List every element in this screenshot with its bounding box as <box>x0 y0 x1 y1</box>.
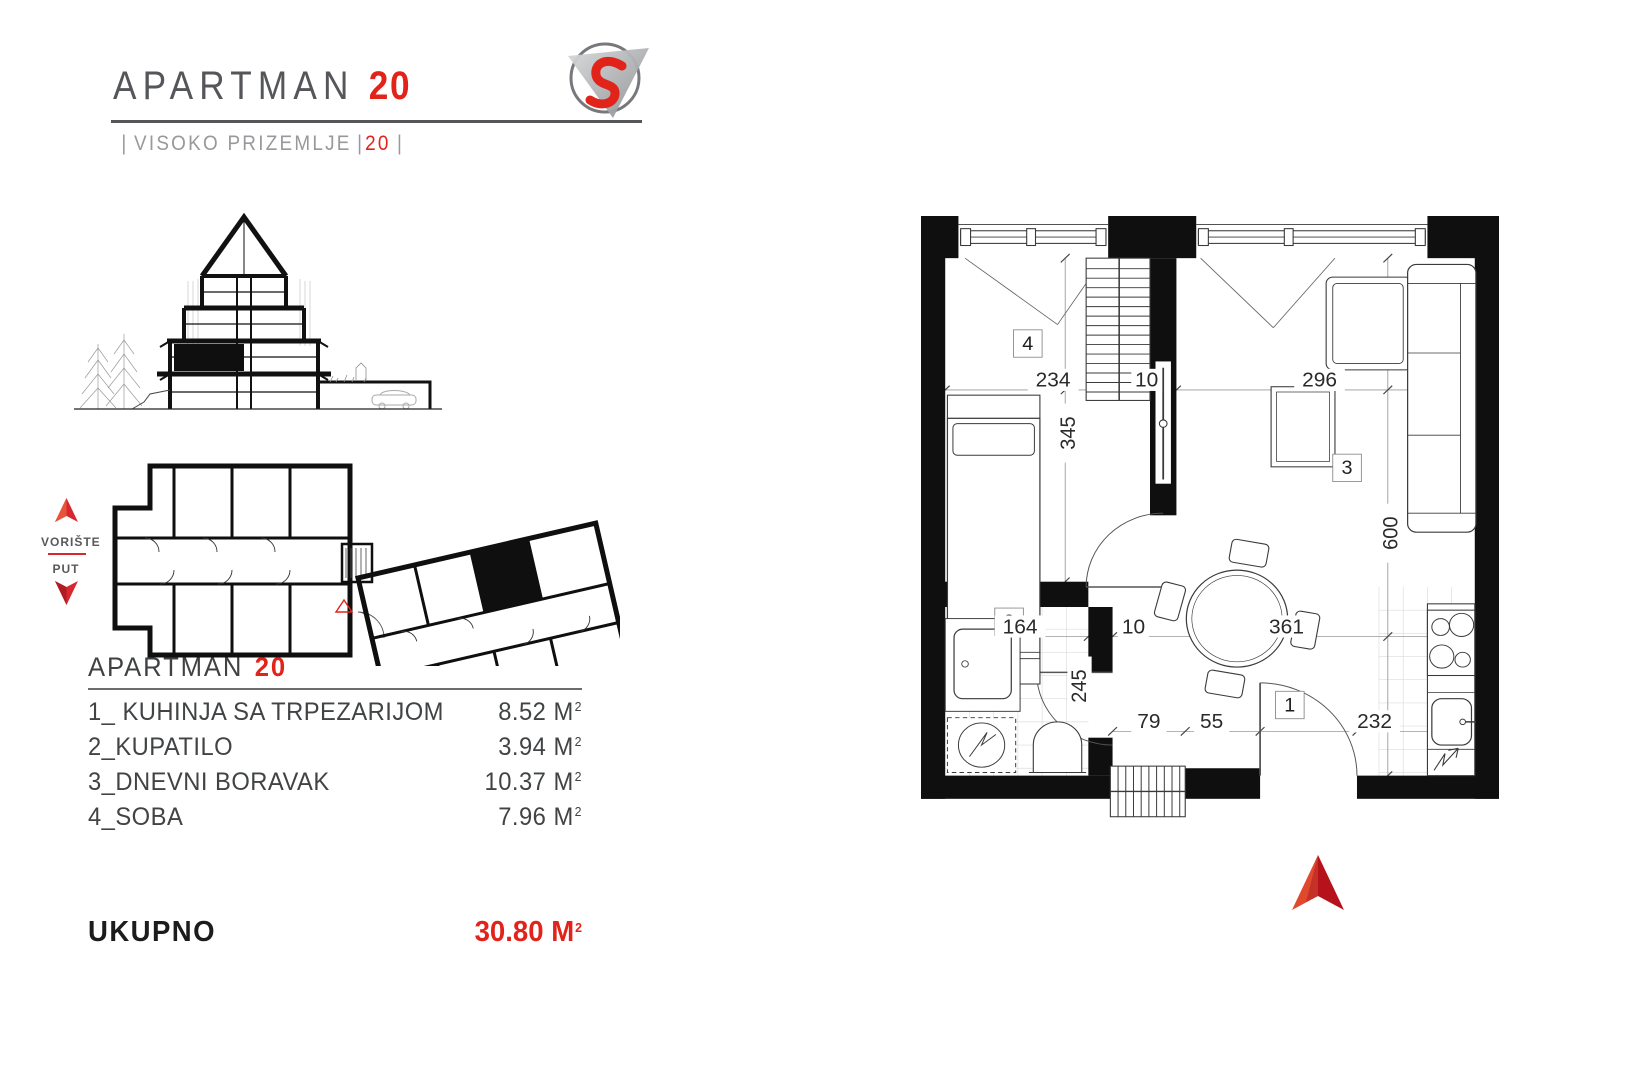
dim-245: 245 <box>1068 669 1091 702</box>
room-list: APARTMAN20 1_ KUHINJA SA TRPEZARIJOM 8.5… <box>88 652 582 838</box>
dining-chair <box>1204 669 1245 698</box>
dim-79: 79 <box>1137 711 1160 733</box>
north-arrow-icon <box>1286 852 1350 916</box>
subtitle-bar: | <box>121 132 128 155</box>
room-4-label: 4 <box>1022 333 1033 355</box>
room-list-divider <box>88 688 582 690</box>
subtitle-number: 20 <box>365 132 391 155</box>
floor-plan: 4 3 2 1 234 10 296 345 600 164 10 361 24… <box>921 216 1499 822</box>
apartment-number: 20 <box>369 64 412 108</box>
dim-55: 55 <box>1200 711 1223 733</box>
subtitle-label: VISOKO PRIZEMLJE <box>134 132 352 155</box>
building-section-drawing <box>72 196 444 416</box>
window-swing <box>1201 258 1335 328</box>
window-swing <box>965 258 1104 324</box>
dining-chair <box>1228 539 1269 568</box>
total-label: UKUPNO <box>88 916 216 949</box>
room-label: 2_KUPATILO <box>88 733 233 762</box>
room-area: 8.52 M2 <box>498 698 582 727</box>
section-outline <box>157 217 331 409</box>
toilet <box>1029 722 1086 773</box>
total-area: 30.80 M2 <box>475 916 582 949</box>
room-list-title-text: APARTMAN <box>88 652 243 682</box>
kitchen-sink <box>1432 699 1476 745</box>
subtitle-bar: | <box>397 132 404 155</box>
list-item: 2_KUPATILO 3.94 M2 <box>88 733 582 768</box>
total-row: UKUPNO 30.80 M2 <box>88 916 582 949</box>
room-1-label: 1 <box>1284 695 1295 717</box>
left-building-wing <box>115 466 350 655</box>
dvoriste-label: DVORIŠTE <box>40 534 101 549</box>
dim-10a: 10 <box>1135 369 1158 391</box>
company-logo <box>550 34 660 128</box>
coffee-table <box>1271 387 1335 467</box>
dim-234: 234 <box>1036 369 1071 391</box>
dim-600: 600 <box>1379 517 1402 550</box>
highlighted-unit-section <box>174 344 244 371</box>
bedroom-door <box>1086 513 1163 587</box>
list-item: 4_SOBA 7.96 M2 <box>88 803 582 838</box>
room-area: 10.37 M2 <box>485 768 582 797</box>
dim-361: 361 <box>1269 616 1304 638</box>
room-list-title-number: 20 <box>255 652 287 682</box>
list-item: 3_DNEVNI BORAVAK 10.37 M2 <box>88 768 582 803</box>
dim-296: 296 <box>1302 369 1337 391</box>
apartment-title: APARTMAN <box>113 64 355 108</box>
orientation-legend: DVORIŠTE PUT <box>40 498 101 605</box>
room-label: 4_SOBA <box>88 803 183 832</box>
entrance-stairs <box>1110 766 1185 817</box>
dim-10b: 10 <box>1122 616 1145 638</box>
dim-164: 164 <box>1003 616 1038 638</box>
dim-345: 345 <box>1057 416 1080 449</box>
room-area: 3.94 M2 <box>498 733 582 762</box>
entrance-door <box>1260 683 1357 776</box>
room-3-label: 3 <box>1342 458 1353 480</box>
dim-232: 232 <box>1357 711 1392 733</box>
right-building-wing <box>358 523 620 666</box>
stove <box>1427 610 1474 675</box>
room-label: 3_DNEVNI BORAVAK <box>88 768 330 797</box>
floor-subtitle: |VISOKO PRIZEMLJE|20| <box>116 132 410 156</box>
red-down-arrow-facet <box>55 581 67 605</box>
room-label: 1_ KUHINJA SA TRPEZARIJOM <box>88 698 444 727</box>
site-key-plan: DVORIŠTE PUT <box>40 398 620 666</box>
room-area: 7.96 M2 <box>498 803 582 832</box>
header-divider <box>111 120 642 123</box>
room-list-title: APARTMAN20 <box>88 652 582 683</box>
red-up-arrow-facet <box>55 498 67 522</box>
put-label: PUT <box>53 562 80 576</box>
facade-hatch-lines <box>188 279 310 346</box>
subtitle-bar: | <box>357 132 364 155</box>
sofa <box>1326 264 1476 532</box>
list-item: 1_ KUHINJA SA TRPEZARIJOM 8.52 M2 <box>88 698 582 733</box>
dimension-labels: 234 10 296 345 600 164 10 361 245 79 55 … <box>995 369 1403 733</box>
ground-vegetation <box>330 363 366 382</box>
washing-machine <box>947 718 1015 773</box>
page-title: APARTMAN20 <box>113 64 411 109</box>
